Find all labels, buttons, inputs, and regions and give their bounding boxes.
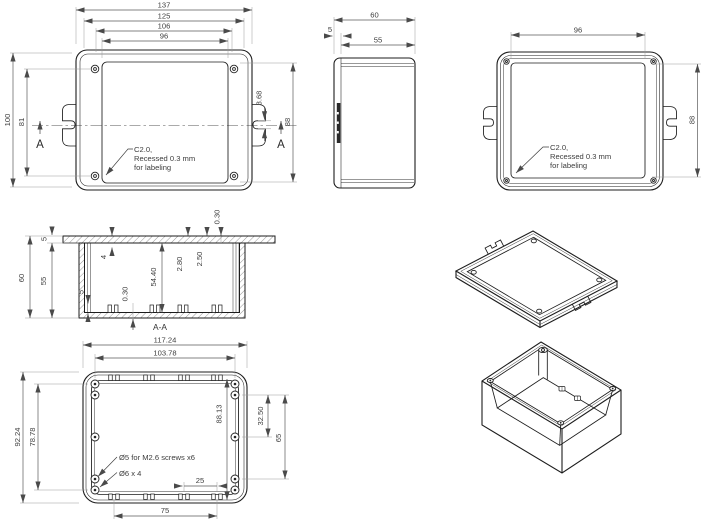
dim-body-depth: 55 xyxy=(374,36,382,45)
dim-screw-pitch: 65 xyxy=(274,434,283,442)
note-line3: for labeling xyxy=(550,161,587,170)
mounting-tab-right xyxy=(663,107,677,140)
mounting-tab-left xyxy=(484,107,498,140)
dim-screw-span: 81 xyxy=(17,118,26,126)
dim-recess-height: 88 xyxy=(688,116,697,124)
dim-body-width: 125 xyxy=(158,12,171,21)
section-marker-a-right: A xyxy=(277,139,285,151)
note-corner-posts: Ø6 x 4 xyxy=(119,469,141,478)
box-silhouette xyxy=(482,342,621,473)
dim-body-height: 55 xyxy=(39,277,48,285)
lid-top-face xyxy=(456,231,617,321)
bottom-step xyxy=(86,375,244,500)
dim-screw-pitch-half: 32.50 xyxy=(256,406,265,425)
dim-depth: 60 xyxy=(370,11,378,20)
dim-slot-pitch: 25 xyxy=(196,476,204,485)
dim-lid-thickness: 5 xyxy=(40,237,49,241)
bottom-outline xyxy=(83,372,247,503)
inner-wall-inner xyxy=(95,384,236,492)
bottom-notes: Ø5 for M2.6 screws x6 Ø6 x 4 xyxy=(98,453,195,487)
tab-edge-profile xyxy=(337,103,341,143)
section-dimensions: 60 55 5 4 54.40 2.80 2.50 0.30 5 0.30 xyxy=(17,210,222,330)
note-line2: Recessed 0.3 mm xyxy=(134,154,195,163)
labeling-note-top: C2.0, Recessed 0.3 mm for labeling xyxy=(106,145,195,175)
view-iso-lid xyxy=(456,231,617,328)
side-dimensions: 60 5 55 xyxy=(326,11,415,46)
corner-post-back xyxy=(539,347,548,379)
dim-inner-height: 92.24 xyxy=(13,427,22,446)
drawing-sheet: 137 125 106 96 100 81 88 3.68 A A C2.0, xyxy=(0,0,702,525)
view-bottom: 117.24 103.78 92.24 78.78 88.13 32.50 65… xyxy=(13,336,289,520)
floor-bosses xyxy=(108,305,222,313)
side-outline xyxy=(334,58,415,188)
dim-slot-span: 75 xyxy=(161,506,169,515)
screw-bosses xyxy=(91,380,239,494)
dim-recess-depth-top: 0.30 xyxy=(213,210,222,225)
dim-recess-width: 96 xyxy=(160,32,168,41)
view-section: 60 55 5 4 54.40 2.80 2.50 0.30 5 0.30 A-… xyxy=(17,210,275,332)
dim-recess-depth-bottom: 0.30 xyxy=(121,287,130,302)
note-line3: for labeling xyxy=(134,163,171,172)
dim-inner-width: 117.24 xyxy=(154,336,177,345)
dim-overall-height: 100 xyxy=(3,114,12,127)
lid-section xyxy=(63,236,275,243)
dim-wall-250: 2.50 xyxy=(195,252,204,267)
dim-total-height: 60 xyxy=(17,274,26,282)
dim-inner-height-2: 88.13 xyxy=(215,404,224,423)
box-rim-inner xyxy=(490,347,612,424)
view-top: 137 125 106 96 100 81 88 3.68 A A C2.0, xyxy=(3,1,297,191)
note-line1: C2.0, xyxy=(550,143,568,152)
dim-tab-slot: 3.68 xyxy=(255,91,264,106)
section-label: A-A xyxy=(153,322,167,332)
section-marker-a-left: A xyxy=(36,139,44,151)
dim-inner-height: 54.40 xyxy=(149,267,158,286)
enclosure-engineering-drawing: 137 125 106 96 100 81 88 3.68 A A C2.0, xyxy=(0,0,702,525)
dim-recess-height: 88 xyxy=(283,118,292,126)
note-line1: C2.0, xyxy=(134,145,152,154)
dim-recess-width: 96 xyxy=(574,26,582,35)
dim-corner-screw-span: 78.78 xyxy=(28,427,37,446)
labeling-note-front: C2.0, Recessed 0.3 mm for labeling xyxy=(516,143,611,173)
dim-overall-width: 137 xyxy=(158,1,171,10)
box-rim-front-edges xyxy=(482,381,621,429)
view-side: 60 5 55 xyxy=(326,11,415,189)
dim-wall-280: 2.80 xyxy=(175,257,184,272)
dim-step-width: 106 xyxy=(158,22,171,31)
inner-wall-outer xyxy=(92,381,239,495)
dim-lip-depth: 4 xyxy=(99,255,108,259)
view-iso-box xyxy=(482,342,621,473)
view-front: 96 88 C2.0, Recessed 0.3 mm for labeling xyxy=(484,26,702,191)
dim-lid-thickness: 5 xyxy=(328,25,332,34)
lid-recess-face xyxy=(467,237,605,314)
bottom-extension-lines xyxy=(20,341,289,519)
dim-boss-height: 5 xyxy=(77,290,86,294)
vent-slots xyxy=(109,375,223,500)
dim-screw-width: 103.78 xyxy=(153,349,176,358)
lid-iso-holes xyxy=(471,239,602,313)
note-screw-holes: Ø5 for M2.6 screws x6 xyxy=(119,453,195,462)
note-line2: Recessed 0.3 mm xyxy=(550,152,611,161)
